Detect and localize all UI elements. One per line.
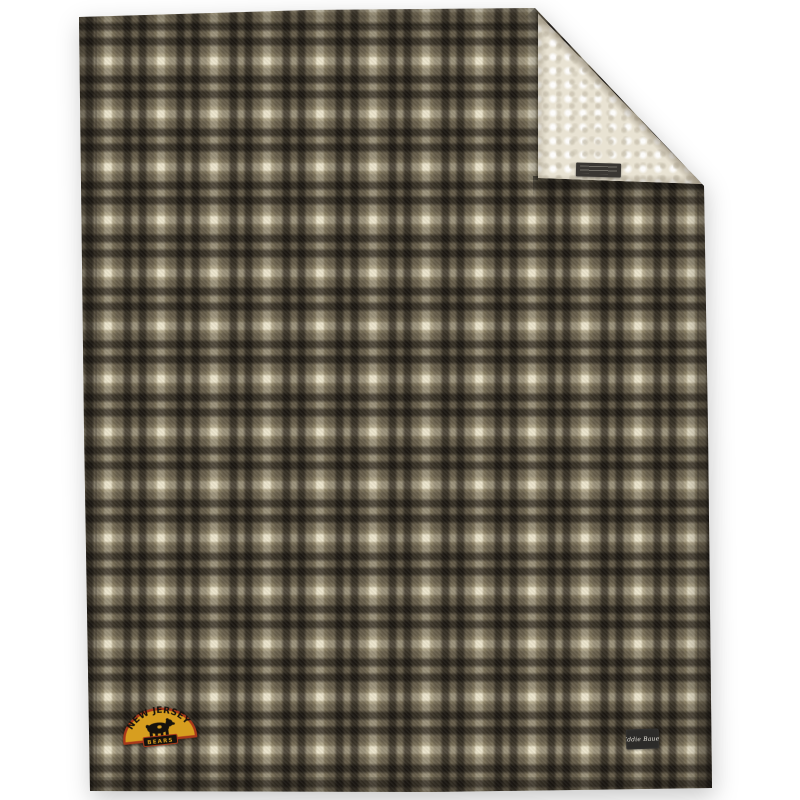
top-edge-shading [0,0,540,24]
right-edge-shading [684,150,714,800]
sherpa-left-edge-shading [538,14,547,180]
left-edge-shading [70,0,104,800]
patch-graphic: NEW JERSEY BEARS [118,701,200,753]
right-hem-seam [697,192,699,792]
bottom-edge-shading [0,776,800,800]
blanket-front-plaid: NEW JERSEY BEARS [0,0,800,800]
bottom-hem-seam [88,777,708,779]
left-hem-seam [95,14,97,794]
fold-crease-shadow [524,8,538,180]
eddie-bauer-tag-text: Eddie Bauer [626,735,660,743]
new-jersey-bears-patch: NEW JERSEY BEARS [118,701,200,753]
blanket: NEW JERSEY BEARS [0,0,800,800]
woven-care-label [576,162,621,177]
product-photo-stage: NEW JERSEY BEARS [0,0,800,800]
top-hem-seam [79,24,530,26]
eddie-bauer-tag: Eddie Bauer [626,728,660,749]
